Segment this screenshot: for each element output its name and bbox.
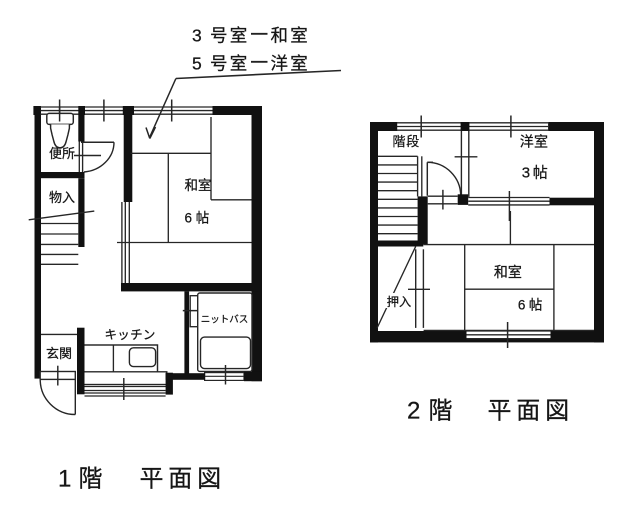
svg-text:平面図: 平面図 [488,398,574,425]
svg-text:3: 3 [192,26,204,46]
svg-text:3: 3 [522,165,530,182]
svg-text:2: 2 [407,398,420,425]
svg-text:洋室: 洋室 [271,54,310,74]
svg-text:5: 5 [192,54,204,74]
svg-text:物入: 物入 [49,190,75,205]
svg-text:便所: 便所 [49,146,75,161]
svg-text:号室: 号室 [210,54,249,74]
svg-text:帖: 帖 [529,298,543,313]
svg-text:ニットバス: ニットバス [201,314,249,325]
svg-text:和室: 和室 [271,26,310,46]
svg-text:帖: 帖 [196,211,210,226]
svg-text:階: 階 [79,466,103,493]
svg-text:和室: 和室 [494,264,522,280]
svg-text:洋室: 洋室 [520,134,549,150]
svg-text:キッチン: キッチン [105,328,156,342]
svg-text:押入: 押入 [387,295,411,309]
svg-text:帖: 帖 [533,165,548,182]
svg-text:6: 6 [518,298,526,313]
svg-text:玄関: 玄関 [46,346,72,361]
svg-text:6: 6 [185,211,193,226]
svg-text:1: 1 [58,466,71,493]
svg-text:平面図: 平面図 [140,466,226,493]
svg-text:和室: 和室 [185,177,212,193]
svg-text:号室: 号室 [210,26,249,46]
svg-text:階: 階 [429,398,453,425]
svg-text:階段: 階段 [393,134,420,149]
